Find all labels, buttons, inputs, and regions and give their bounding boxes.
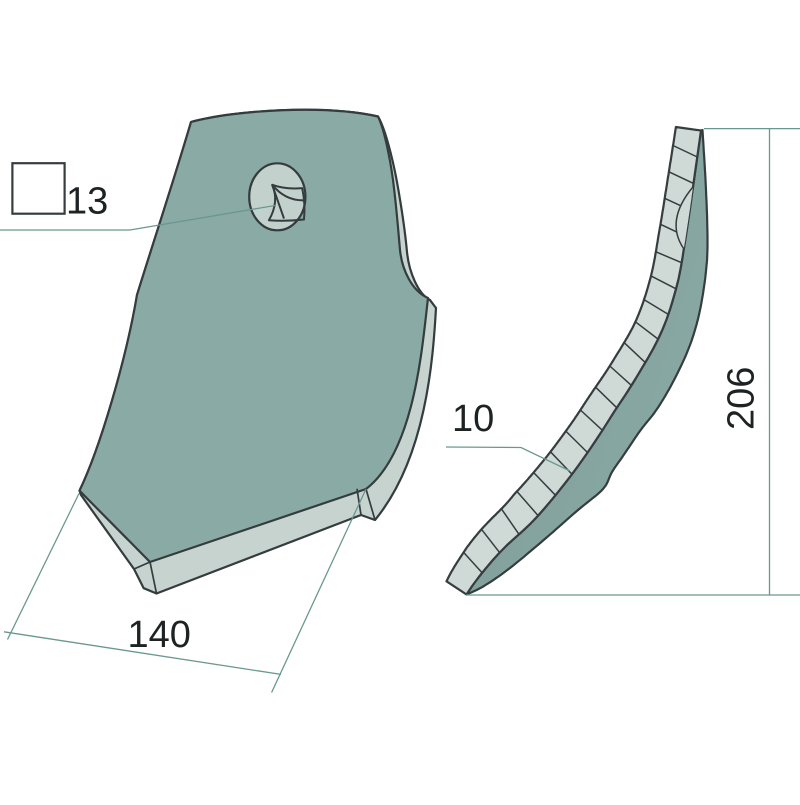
svg-text:206: 206	[721, 367, 763, 430]
svg-text:13: 13	[66, 181, 108, 223]
svg-text:10: 10	[452, 398, 494, 440]
svg-text:140: 140	[128, 614, 191, 656]
